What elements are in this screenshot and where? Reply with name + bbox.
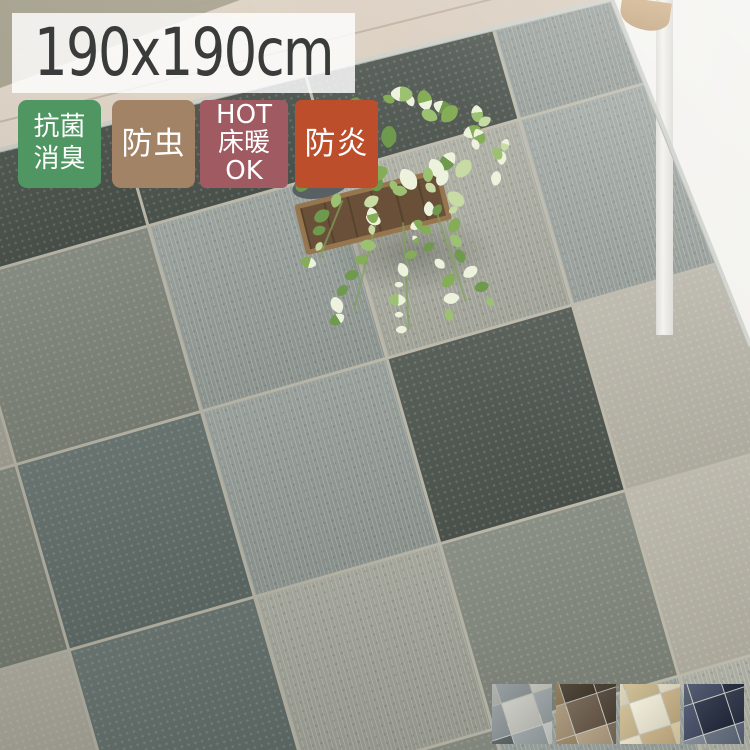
- badge-antibacterial-deodorizing: 抗菌 消臭: [18, 100, 101, 188]
- ivy-leaf: [395, 324, 408, 337]
- product-image: 190x190cm 抗菌 消臭 防虫 HOT 床暖 OK 防炎: [0, 0, 750, 750]
- ivy-leaf: [487, 170, 504, 187]
- color-variant-brown[interactable]: [556, 684, 616, 744]
- color-variant-gray[interactable]: [492, 684, 552, 744]
- badge-floor-heating-ok: HOT 床暖 OK: [200, 100, 288, 188]
- badge-flame-retardant: 防炎: [295, 100, 378, 188]
- badge-insect-repellent: 防虫: [112, 100, 195, 188]
- ivy-leaf: [454, 158, 473, 177]
- size-banner: 190x190cm: [12, 13, 355, 93]
- ivy-leaf: [328, 312, 344, 328]
- ivy-leaf: [441, 105, 459, 123]
- color-variant-navy[interactable]: [684, 684, 744, 744]
- ivy-leaf: [442, 308, 456, 322]
- ivy-leaf: [377, 124, 402, 149]
- color-variant-beige[interactable]: [620, 684, 680, 744]
- size-label: 190x190cm: [34, 20, 333, 86]
- ivy-leaf: [394, 310, 404, 320]
- ivy-leaf: [412, 88, 436, 112]
